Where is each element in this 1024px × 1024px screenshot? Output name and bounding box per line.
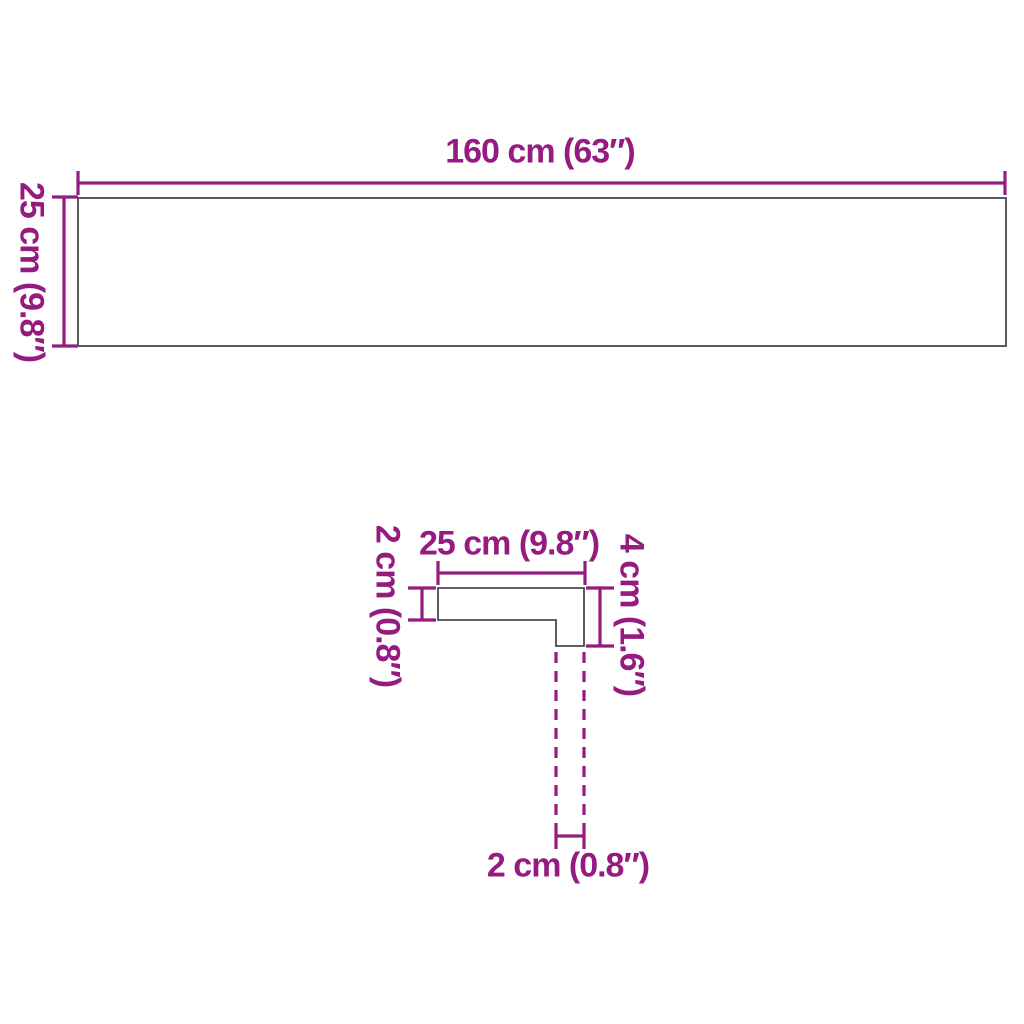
top-depth-label: 25 cm (9.8″) — [12, 182, 51, 362]
nose-width-label: 2 cm (0.8″) — [487, 847, 649, 886]
profile-shape — [438, 588, 584, 646]
top-view-board — [78, 198, 1006, 346]
board-outlines — [78, 198, 1006, 646]
profile-height-label: 4 cm (1.6″) — [612, 534, 651, 696]
profile-thickness-label: 2 cm (0.8″) — [368, 525, 407, 687]
top-width-label: 160 cm (63″) — [445, 133, 635, 172]
dimension-diagram: 160 cm (63″) 25 cm (9.8″) 25 cm (9.8″) 2… — [0, 0, 1024, 1024]
profile-width-label: 25 cm (9.8″) — [419, 525, 599, 564]
